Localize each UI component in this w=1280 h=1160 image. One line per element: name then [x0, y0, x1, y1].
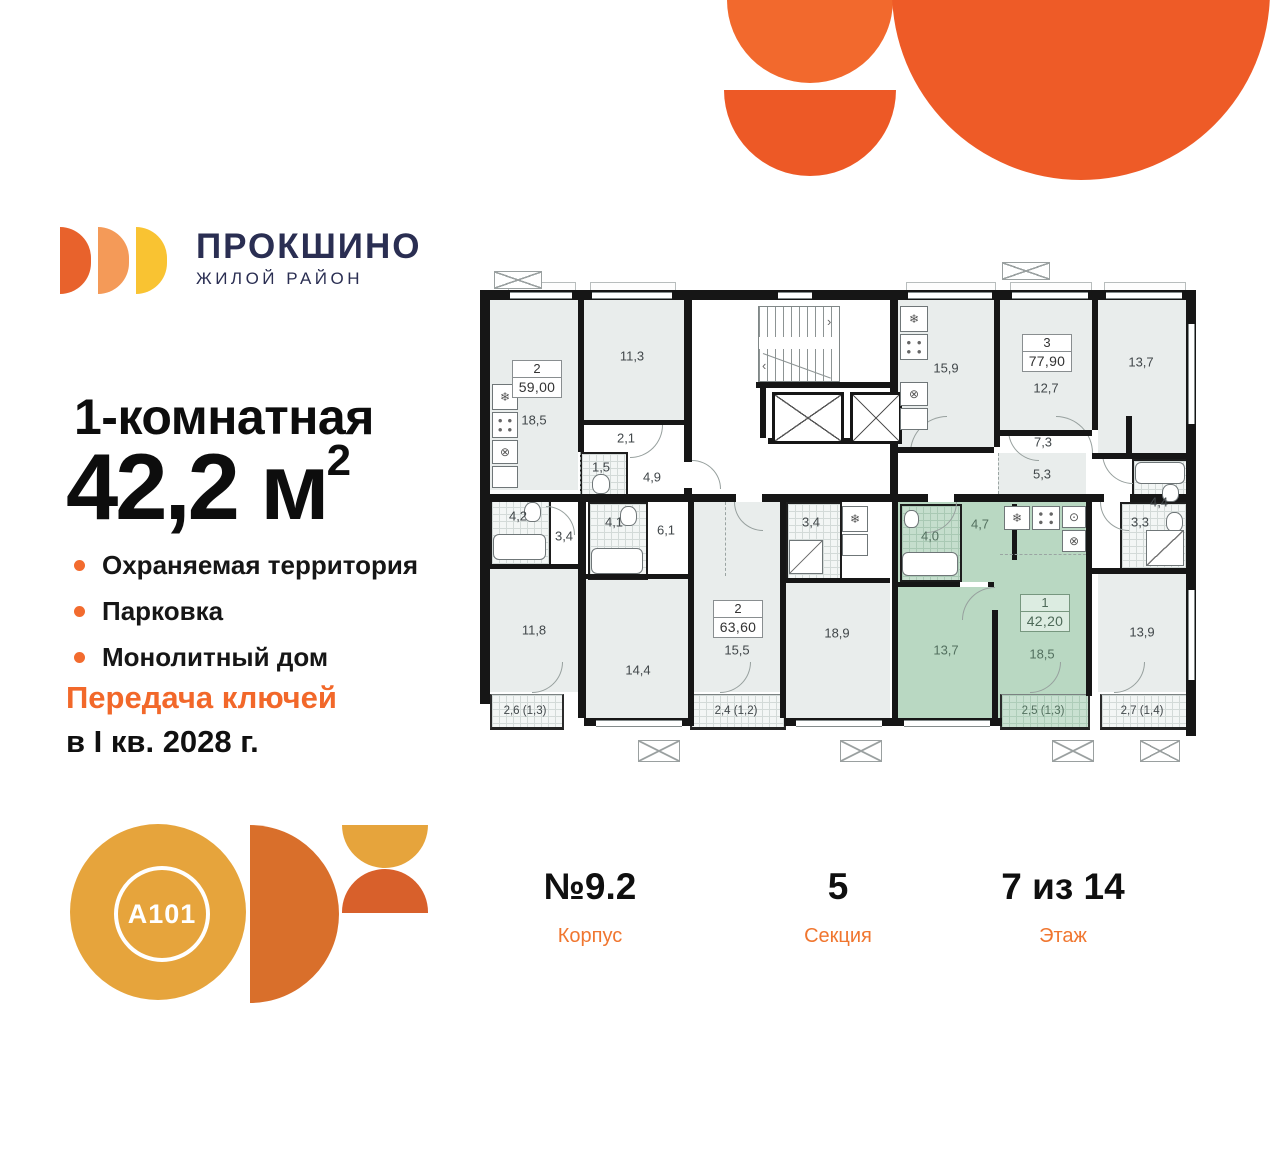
bullet-dot-icon — [74, 652, 85, 663]
dashed-line — [725, 502, 726, 576]
room-label: 18,5 — [521, 413, 546, 428]
door-opening — [960, 582, 988, 587]
room-label: 11,8 — [522, 623, 546, 638]
window-mark — [796, 720, 882, 727]
window-mark — [1106, 292, 1182, 299]
section-value: 5 — [748, 866, 928, 908]
counter-icon — [492, 466, 518, 488]
window-mark — [596, 720, 682, 727]
wall-segment — [1092, 300, 1098, 430]
room-label-selected: 4,0 — [921, 529, 939, 544]
room-label: 12,7 — [1033, 381, 1058, 396]
apartment-a-rooms-count: 2 — [513, 361, 561, 378]
fridge-icon: ❄ — [1004, 506, 1030, 530]
selected-apartment-total-area: 42,20 — [1021, 612, 1069, 631]
feature-item: Охраняемая территория — [74, 550, 418, 581]
stair-arrow-icon: ‹ — [762, 359, 766, 372]
wall-segment — [480, 290, 490, 704]
room-b-bedroom — [586, 579, 688, 718]
door-opening — [736, 494, 762, 502]
room-label: 3,4 — [555, 529, 573, 544]
wall-segment — [780, 502, 786, 718]
floor-plan: › ‹ — [480, 270, 1200, 770]
bathtub — [591, 548, 643, 574]
room-label: 18,9 — [824, 626, 849, 641]
room-label: 14,4 — [625, 663, 650, 678]
wall-segment — [756, 382, 898, 388]
fridge-icon: ❄ — [900, 306, 928, 332]
door-opening — [928, 494, 954, 502]
deco-halfcircle-small-top-icon — [727, 0, 893, 83]
wall-segment — [1092, 568, 1186, 574]
apartment-c-rooms-count: 3 — [1023, 335, 1071, 352]
wall-segment — [1086, 502, 1092, 696]
shower — [789, 540, 823, 574]
meta-section: 5 Секция — [748, 866, 928, 948]
bathtub — [902, 552, 958, 576]
room-label: 5,3 — [1033, 467, 1051, 482]
apartment-c-infobox: 3 77,90 — [1022, 334, 1072, 372]
bullet-dot-icon — [74, 560, 85, 571]
room-label: 2,1 — [617, 431, 635, 446]
handover-line-1: Передача ключей — [66, 680, 337, 716]
stair-arrow-icon: › — [827, 315, 831, 328]
room-label-selected: 18,5 — [1029, 647, 1054, 662]
dashed-line — [1000, 554, 1086, 555]
feature-label: Охраняемая территория — [102, 550, 418, 581]
wall-segment — [578, 494, 586, 718]
room-label: 13,9 — [1129, 625, 1154, 640]
window-mark — [904, 720, 990, 727]
dashed-line — [998, 453, 999, 494]
area-unit: м — [237, 434, 327, 539]
window-mark — [510, 292, 572, 299]
window-mark — [592, 292, 672, 299]
deco-big-circle-icon — [892, 0, 1270, 180]
room-label: 1,5 — [592, 460, 610, 475]
sink-icon: ⊗ — [1062, 530, 1086, 552]
room-label: 4,2 — [509, 509, 527, 524]
corpus-value: №9.2 — [500, 866, 680, 908]
window-mark — [1188, 590, 1195, 680]
balcony-label: 2,7 (1,4) — [1121, 705, 1164, 717]
apartment-a-infobox: 2 59,00 — [512, 360, 562, 398]
room-label-selected: 4,7 — [971, 517, 989, 532]
door-arc — [1100, 502, 1129, 531]
apartment-area-title: 42,2 м2 — [66, 440, 351, 534]
feature-label: Парковка — [102, 596, 223, 627]
logo-disc-light-orange-icon — [98, 227, 129, 294]
wall-segment — [480, 290, 1196, 300]
room-label: 4,4 — [1150, 495, 1168, 510]
sink-icon: ⊗ — [900, 382, 928, 406]
apartment-c-total-area: 77,90 — [1023, 352, 1071, 371]
room-label: 7,3 — [1034, 435, 1052, 450]
elevator-shaft — [772, 392, 844, 444]
window-mark — [1012, 292, 1088, 299]
crossed-box-icon — [638, 740, 680, 762]
selected-apartment-rooms-count: 1 — [1021, 595, 1069, 612]
crossed-box-icon — [1140, 740, 1180, 762]
shower — [1146, 530, 1184, 566]
window-mark — [908, 292, 992, 299]
developer-logo-bowl-icon — [342, 825, 428, 868]
apartment-b-rooms-count: 2 — [714, 601, 762, 618]
room-label: 3,4 — [802, 515, 820, 530]
wall-segment — [994, 300, 1000, 447]
wall-segment — [892, 502, 898, 718]
sink-icon: ⊙ — [1062, 506, 1086, 528]
room-label: 13,7 — [1128, 355, 1153, 370]
crossed-box-icon — [1002, 262, 1050, 280]
bathtub — [1135, 462, 1185, 484]
fridge-icon: ❄ — [842, 506, 868, 532]
stove-icon — [900, 334, 928, 360]
door-opening — [1104, 494, 1130, 502]
balcony-label-selected: 2,5 (1,3) — [1022, 705, 1065, 717]
crossed-box-icon — [840, 740, 882, 762]
wall-segment — [584, 574, 688, 579]
room-label-selected: 13,7 — [933, 643, 958, 658]
apartment-b-infobox: 2 63,60 — [713, 600, 763, 638]
sink-icon: ⊗ — [492, 440, 518, 464]
dashed-line — [580, 452, 581, 494]
wall-segment — [992, 610, 998, 718]
stove-icon — [1032, 506, 1060, 530]
window-mark — [1188, 324, 1195, 424]
logo-disc-orange-icon — [60, 227, 91, 294]
room-label: 6,1 — [657, 523, 675, 538]
area-superscript: 2 — [327, 436, 351, 485]
room-label: 3,3 — [1131, 515, 1149, 530]
feature-item: Монолитный дом — [74, 642, 328, 673]
logo-disc-yellow-icon — [136, 227, 167, 294]
meta-corpus: №9.2 Корпус — [500, 866, 680, 948]
balcony-label: 2,4 (1,2) — [715, 705, 758, 717]
wall-segment — [760, 388, 766, 438]
wall-segment — [786, 578, 890, 583]
bathtub — [493, 534, 546, 560]
stove-icon — [492, 412, 518, 438]
toilet — [1166, 512, 1183, 532]
wall-segment — [688, 502, 694, 718]
counter-icon — [842, 534, 868, 556]
wall-segment — [1126, 416, 1132, 459]
listing-card: ПРОКШИНО ЖИЛОЙ РАЙОН 1-комнатная 42,2 м2… — [0, 0, 1280, 1160]
room-label: 15,5 — [724, 643, 749, 658]
wall-segment — [490, 564, 578, 569]
district-logo-subtitle: ЖИЛОЙ РАЙОН — [196, 269, 421, 289]
wall-segment — [584, 420, 684, 425]
bullet-dot-icon — [74, 606, 85, 617]
apartment-b-total-area: 63,60 — [714, 618, 762, 637]
floor-value: 7 из 14 — [973, 866, 1153, 908]
corpus-label: Корпус — [500, 925, 680, 948]
developer-logo-dome-icon — [342, 869, 428, 913]
room-label: 4,1 — [605, 515, 623, 530]
feature-item: Парковка — [74, 596, 223, 627]
wall-segment — [578, 300, 584, 452]
counter-icon — [900, 408, 928, 430]
crossed-box-icon — [1052, 740, 1094, 762]
selected-apartment-infobox: 1 42,20 — [1020, 594, 1070, 632]
crossed-box-icon — [494, 271, 542, 289]
window-mark — [778, 292, 812, 299]
district-logo-discs-icon — [60, 227, 167, 294]
toilet — [592, 474, 610, 494]
section-label: Секция — [748, 925, 928, 948]
room-b-kitchen — [786, 583, 890, 718]
apartment-a-total-area: 59,00 — [513, 378, 561, 397]
wall-segment — [1092, 453, 1186, 459]
staircase: › ‹ — [758, 306, 840, 382]
feature-label: Монолитный дом — [102, 642, 328, 673]
balcony-label: 2,6 (1,3) — [504, 705, 547, 717]
handover-line-2: в I кв. 2028 г. — [66, 724, 259, 760]
floor-label: Этаж — [973, 925, 1153, 948]
elevator-shaft — [850, 392, 902, 444]
room-c-bedroom2 — [1098, 300, 1186, 453]
developer-logo-halfdisc-icon — [250, 825, 339, 1003]
door-arc — [692, 460, 721, 489]
door-opening — [684, 462, 692, 488]
room-label: 4,9 — [643, 470, 661, 485]
area-value: 42,2 — [66, 434, 237, 539]
district-logo: ПРОКШИНО ЖИЛОЙ РАЙОН — [196, 228, 421, 289]
district-logo-title: ПРОКШИНО — [196, 228, 421, 266]
wall-segment — [898, 447, 994, 453]
wall-segment — [490, 494, 1186, 502]
deco-halfcircle-small-bottom-icon — [724, 90, 896, 176]
developer-logo-text: A101 — [114, 866, 210, 962]
room-label: 15,9 — [933, 361, 958, 376]
room-label: 11,3 — [620, 349, 644, 364]
meta-floor: 7 из 14 Этаж — [973, 866, 1153, 948]
toilet — [904, 510, 919, 528]
